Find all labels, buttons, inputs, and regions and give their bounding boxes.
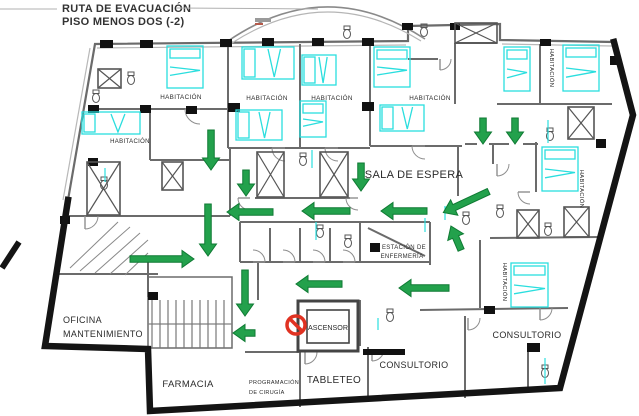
wall-block	[228, 103, 240, 112]
room-label-estacion-1: ESTACIÓN DE	[382, 244, 426, 251]
canopy-text-smudge	[255, 18, 271, 22]
wall-block	[370, 243, 380, 252]
wall-block	[527, 343, 540, 352]
outer-wall-stub	[2, 242, 19, 268]
room-label-estacion-2: ENFERMERÍA	[381, 253, 424, 260]
elevator-label: ASCENSOR	[308, 323, 349, 332]
room-label-habitacion-2: HABITACIÓN	[246, 93, 288, 102]
wall-block	[140, 40, 153, 48]
evacuation-plan-canvas: RUTA DE EVACUACIÓN PISO MENOS DOS (-2) A…	[0, 0, 639, 416]
wall-block	[220, 39, 232, 47]
wall-block	[540, 39, 551, 46]
canopy-text-smudge	[255, 23, 263, 25]
toilet-icon	[344, 26, 351, 39]
room-label-consultorio-1: CONSULTORIO	[379, 360, 448, 370]
wall-block	[402, 23, 413, 30]
room-label-oficina-1: OFICINA	[63, 315, 102, 325]
wall-block	[140, 105, 151, 113]
room-label-habitacion-7: HABITACIÓN	[578, 170, 585, 209]
wall-block	[596, 139, 606, 148]
room-label-tableteo: TABLETEO	[307, 375, 361, 386]
wall-block	[148, 292, 158, 300]
leader-line	[176, 8, 318, 9]
room-label-farmacia: FARMACIA	[162, 379, 214, 390]
room-label-sala-de-espera: SALA DE ESPERA	[365, 169, 464, 181]
wall-block	[262, 38, 274, 46]
wall-block	[186, 106, 197, 114]
room-label-programacion-2: DE CIRUGÍA	[249, 389, 285, 396]
room-label-habitacion-5: HABITACIÓN	[110, 138, 150, 145]
wall-block	[484, 306, 495, 314]
room-label-habitacion-8: HABITACIÓN	[501, 263, 508, 302]
wall-block	[100, 40, 113, 48]
building-outline	[45, 24, 633, 411]
wall-block	[312, 38, 324, 46]
room-label-oficina-2: MANTENIMIENTO	[63, 329, 143, 339]
floor-plan-svg: ASCENSORHABITACIÓNHABITACIÓNHABITACIÓNHA…	[0, 0, 639, 416]
room-label-programacion-1: PROGRAMACIÓN	[249, 379, 299, 386]
wall-block	[362, 102, 374, 111]
wall-block	[362, 38, 374, 46]
room-label-habitacion-4: HABITACIÓN	[409, 93, 451, 102]
wall-block	[363, 349, 405, 355]
room-label-habitacion-3: HABITACIÓN	[311, 93, 353, 102]
canopy-arc	[232, 12, 421, 43]
room-label-habitacion-6: HABITACIÓN	[548, 49, 555, 88]
room-label-habitacion-1: HABITACIÓN	[160, 92, 202, 101]
room-label-consultorio-2: CONSULTORIO	[492, 330, 561, 340]
